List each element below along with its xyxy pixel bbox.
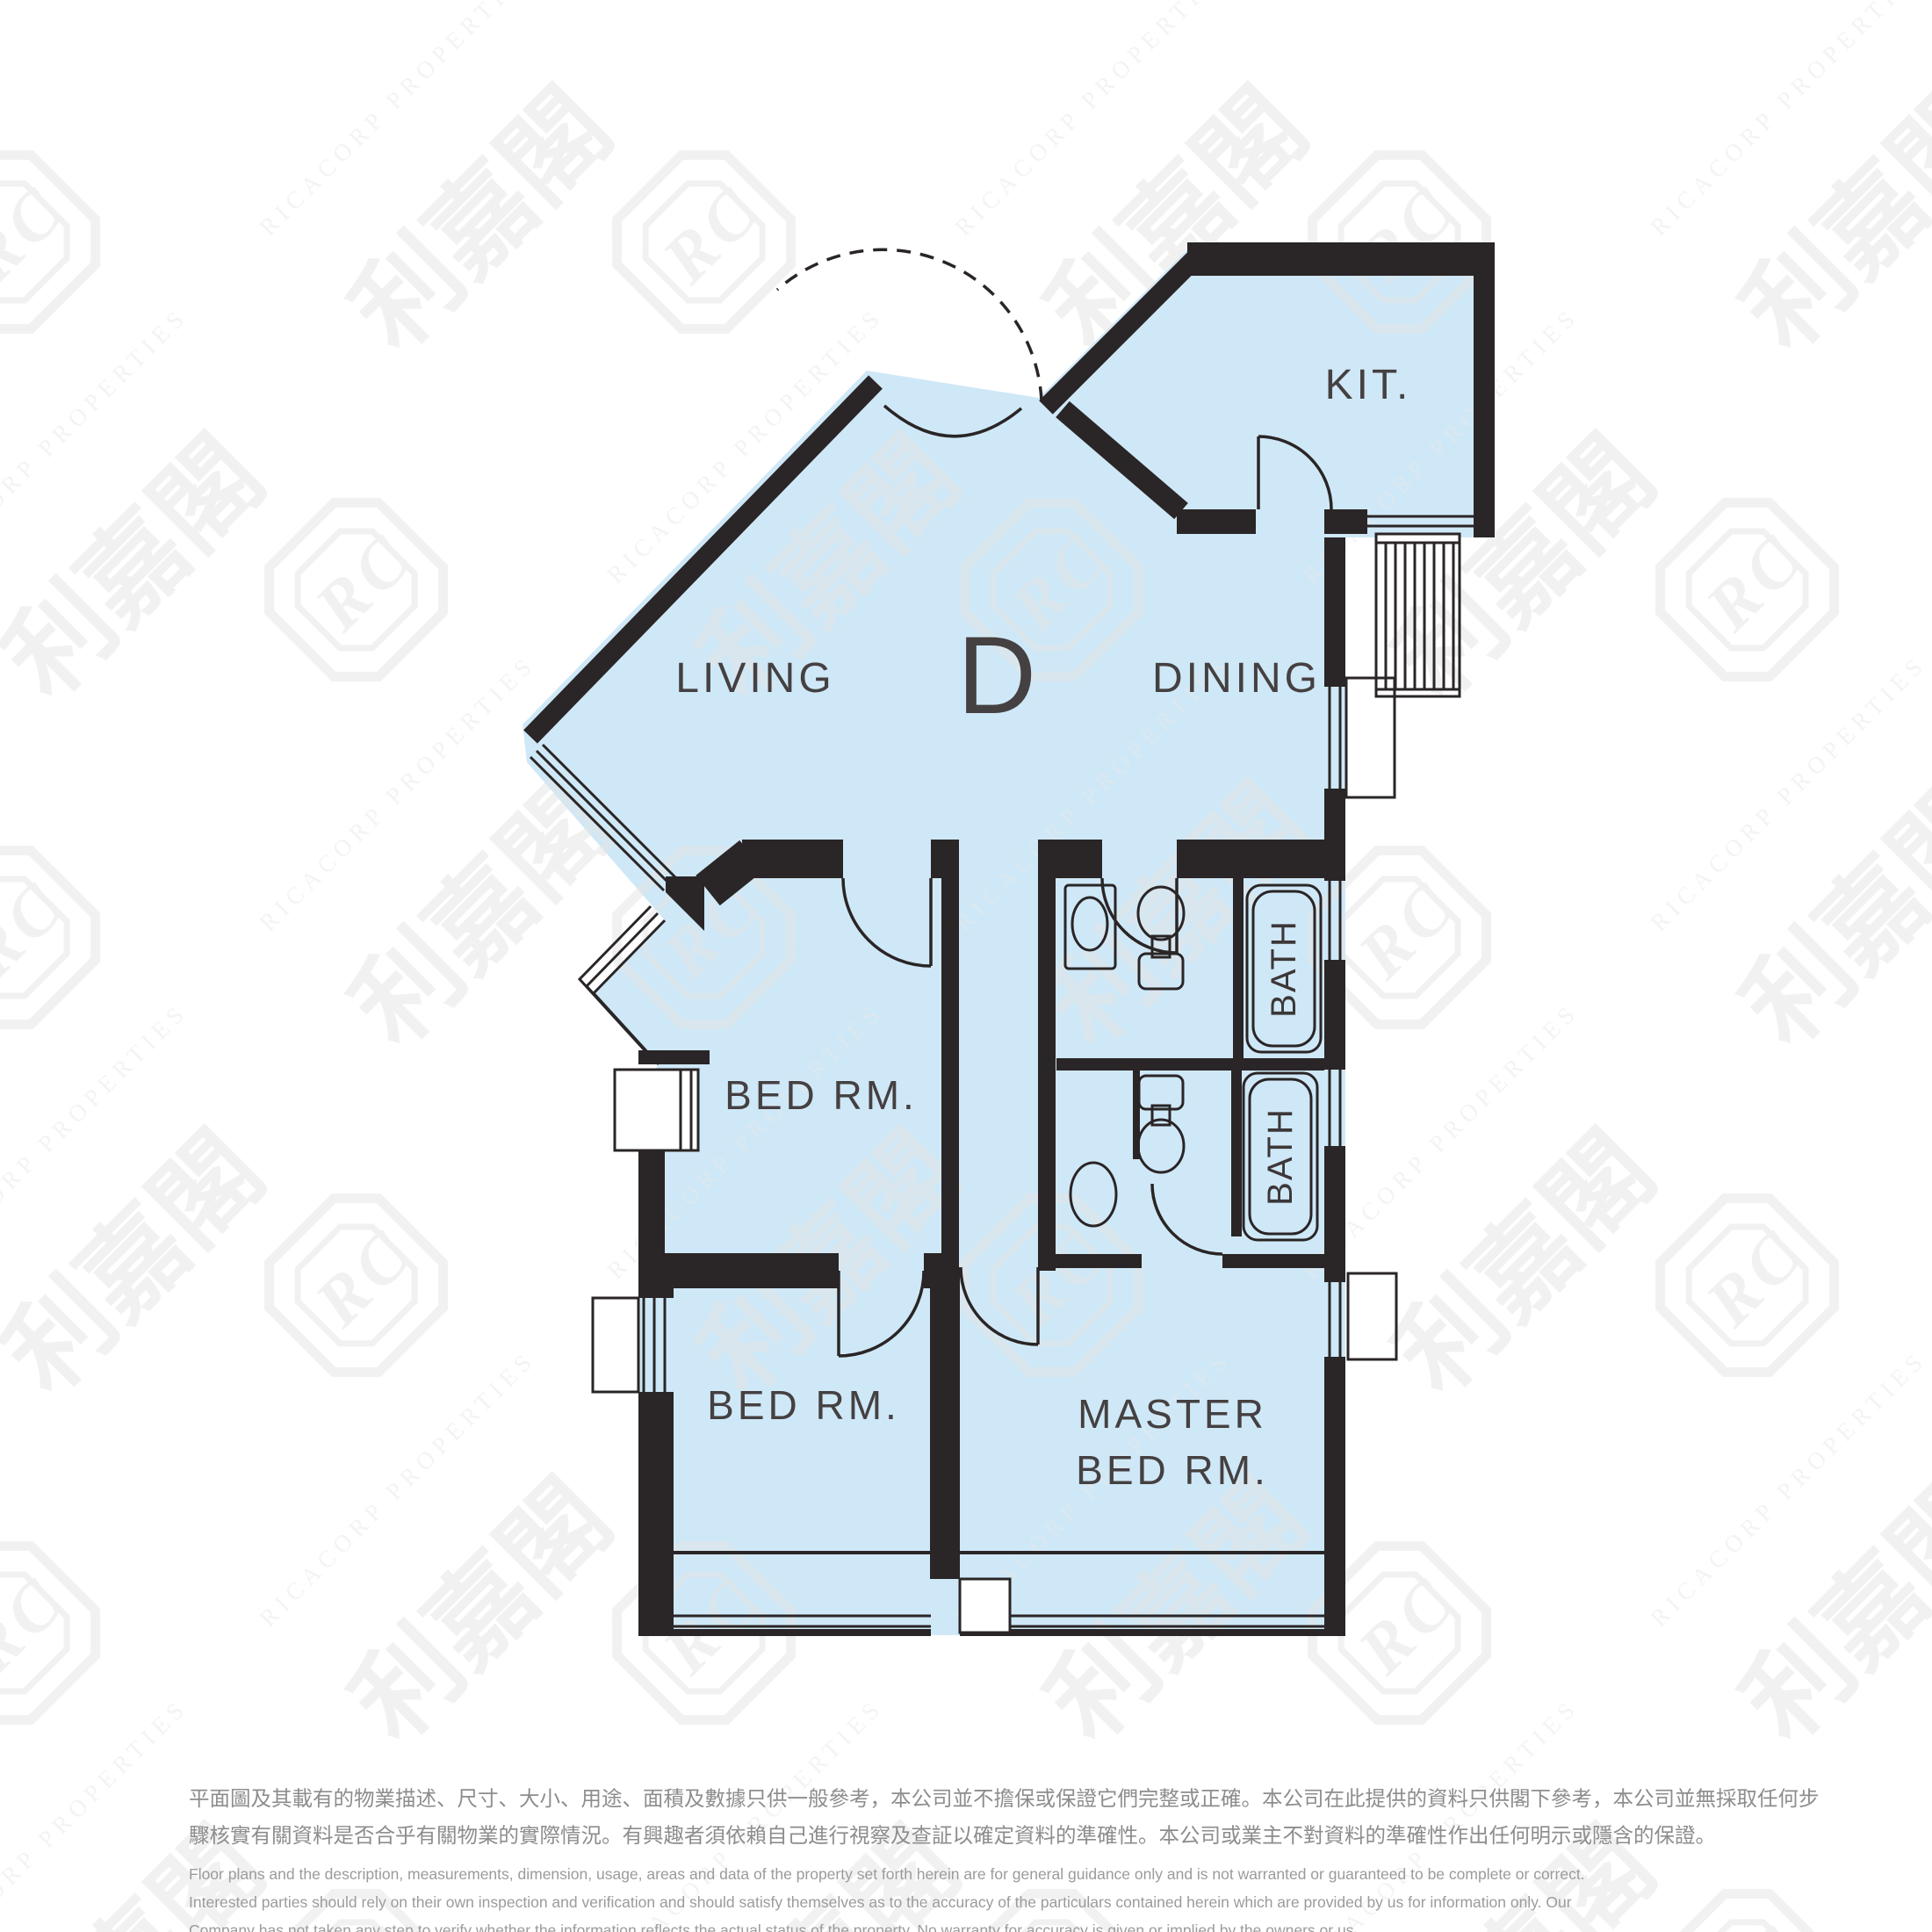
wall-left-diagonal-stub xyxy=(708,855,752,890)
balcony-gap xyxy=(960,1579,1010,1633)
room-label-bedroom-mid: BED RM. xyxy=(724,1072,918,1118)
unit-letter: D xyxy=(957,615,1036,737)
room-label-living: LIVING xyxy=(675,655,834,702)
disclaimer-en-line3: Company has not taken any step to verify… xyxy=(189,1921,1358,1932)
room-label-master-line2: BED RM. xyxy=(1076,1447,1269,1493)
disclaimer-en-line2: Interested parties should rely on their … xyxy=(189,1893,1572,1911)
disclaimer-en-line1: Floor plans and the description, measure… xyxy=(189,1865,1585,1883)
disclaimer-cjk-line1: 平面圖及其載有的物業描述、尺寸、大小、用途、面積及數據只供一般參考，本公司並不擔… xyxy=(189,1787,1820,1810)
watermark-layer xyxy=(0,0,1932,1932)
room-label-bedroom-left: BED RM. xyxy=(707,1382,900,1428)
room-label-kitchen: KIT. xyxy=(1325,362,1412,408)
room-label-master-line1: MASTER xyxy=(1078,1391,1267,1437)
floor-plan-svg: 利嘉閣 RC RICACORP PROPERTIES xyxy=(0,0,1932,1932)
room-label-dining: DINING xyxy=(1152,655,1321,702)
disclaimer-cjk-line2: 驟核實有關資料是否合乎有關物業的實際情況。有興趣者須依賴自己進行視察及查証以確定… xyxy=(189,1824,1716,1847)
room-label-bath1: BATH xyxy=(1265,919,1303,1018)
room-label-bath2: BATH xyxy=(1261,1107,1300,1206)
